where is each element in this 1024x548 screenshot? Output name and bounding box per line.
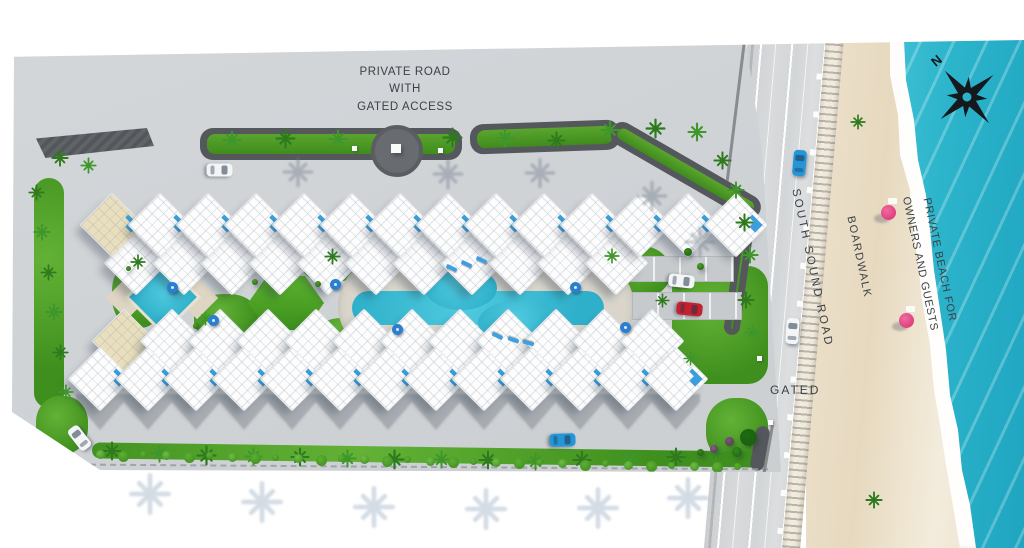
- palm-shadow: [128, 472, 172, 516]
- car-windshield: [683, 277, 690, 287]
- shrub: [118, 451, 129, 462]
- palm-shadow: [352, 485, 396, 529]
- palm-tree: [687, 122, 707, 142]
- palm-tree: [130, 254, 146, 270]
- shrub: [734, 463, 741, 470]
- palm-tree: [80, 157, 97, 174]
- shrub: [228, 453, 237, 462]
- car: [549, 433, 575, 447]
- gate-post: [352, 146, 357, 151]
- pool-umbrella: [392, 324, 403, 335]
- flowering-shrub: [725, 437, 734, 446]
- shrub: [316, 455, 327, 466]
- car-windshield: [71, 429, 82, 439]
- palm-tree: [28, 184, 45, 201]
- palm-shadow: [576, 486, 620, 530]
- car: [676, 301, 703, 317]
- shrub: [580, 460, 591, 471]
- palm-tree: [604, 248, 620, 264]
- shrub: [382, 456, 393, 467]
- palm-tree: [735, 213, 754, 232]
- shrub: [404, 456, 411, 463]
- palm-tree: [683, 351, 698, 366]
- tree: [740, 429, 757, 446]
- tree: [697, 449, 704, 456]
- car-windshield: [788, 323, 797, 330]
- shrub: [558, 459, 567, 468]
- car-windshield: [222, 166, 228, 175]
- shrub: [140, 451, 147, 458]
- car-rear-window: [79, 439, 89, 448]
- palm-tree: [33, 223, 51, 241]
- private-road-label: PRIVATE ROAD WITH GATED ACCESS: [310, 64, 500, 116]
- beach-umbrella: [899, 313, 914, 328]
- pool-umbrella: [330, 279, 341, 290]
- car-rear-window: [794, 168, 803, 173]
- shrub: [536, 459, 543, 466]
- car-rear-window: [211, 166, 215, 175]
- car: [668, 273, 695, 289]
- pool-umbrella: [620, 322, 631, 333]
- pool-umbrella: [208, 315, 219, 326]
- shrub: [272, 454, 279, 461]
- palm-shadow: [666, 476, 710, 520]
- shrub: [294, 454, 303, 463]
- palm-tree: [741, 246, 759, 264]
- shrub: [426, 457, 435, 466]
- palm-shadow: [636, 180, 668, 212]
- car: [207, 164, 233, 177]
- palm-shadow: [464, 487, 508, 531]
- palm-shadow: [282, 156, 314, 188]
- palm-tree: [713, 151, 732, 170]
- palm-tree: [51, 149, 69, 167]
- palm-shadow: [524, 157, 556, 189]
- shrub: [184, 452, 195, 463]
- palm-tree: [275, 128, 296, 149]
- tree: [697, 263, 704, 270]
- gate-post: [438, 148, 443, 153]
- private-road-label-line: GATED ACCESS: [310, 99, 500, 116]
- shrub: [360, 455, 369, 464]
- tree: [684, 248, 692, 256]
- palm-tree: [495, 128, 515, 148]
- beach-chair: [906, 306, 915, 312]
- shrub: [514, 458, 525, 469]
- shrub: [338, 455, 345, 462]
- palm-tree: [850, 114, 866, 130]
- car-rear-window: [787, 336, 796, 341]
- palm-tree: [328, 129, 348, 149]
- rooftop-pool-accent: [684, 368, 702, 386]
- tree: [193, 323, 199, 329]
- resort-site-plan: PRIVATE ROAD WITH GATED ACCESS SOUTH SOU…: [0, 0, 1024, 548]
- palm-tree: [442, 127, 463, 148]
- palm-tree: [737, 291, 755, 309]
- car: [792, 149, 807, 176]
- tree: [315, 281, 321, 287]
- gate-post: [768, 420, 773, 425]
- shrub: [602, 460, 609, 467]
- shrub: [690, 462, 699, 471]
- car-rear-window: [553, 436, 557, 445]
- private-road-label-line: PRIVATE ROAD: [310, 64, 500, 81]
- beach-umbrella: [881, 205, 896, 220]
- palm-tree: [40, 264, 57, 281]
- palm-tree: [324, 248, 341, 265]
- palm-tree: [222, 130, 242, 150]
- shrub: [448, 457, 459, 468]
- car-windshield: [564, 435, 570, 444]
- palm-shadow: [432, 158, 464, 190]
- palm-tree: [52, 344, 69, 361]
- tree: [252, 279, 258, 285]
- flowering-shrub: [710, 445, 718, 453]
- pool-umbrella: [570, 282, 581, 293]
- palm-shadow: [240, 480, 284, 524]
- tree: [126, 266, 131, 271]
- shrub: [712, 462, 723, 473]
- palm-tree: [865, 491, 883, 509]
- pool-umbrella: [167, 282, 178, 293]
- shrub: [162, 451, 171, 460]
- gated-label: GATED: [770, 383, 820, 397]
- shrub: [624, 461, 633, 470]
- car-windshield: [691, 305, 698, 315]
- palm-tree: [655, 293, 670, 308]
- palm-tree: [727, 181, 745, 199]
- car: [785, 318, 800, 345]
- car-rear-window: [680, 304, 685, 313]
- car-rear-window: [672, 276, 677, 285]
- palm-tree: [645, 118, 666, 139]
- palm-tree: [547, 131, 566, 150]
- palm-tree: [744, 324, 761, 341]
- beach-umbrella-group: [892, 310, 922, 340]
- gate-post: [757, 356, 762, 361]
- shrub: [668, 462, 675, 469]
- shrub: [470, 458, 477, 465]
- tree: [732, 447, 742, 457]
- shrub: [646, 461, 657, 472]
- shrub: [492, 458, 501, 467]
- palm-tree: [600, 120, 620, 140]
- palm-tree: [45, 303, 63, 321]
- car-windshield: [795, 155, 804, 162]
- palm-tree: [58, 384, 74, 400]
- private-road-label-line: WITH: [310, 81, 500, 98]
